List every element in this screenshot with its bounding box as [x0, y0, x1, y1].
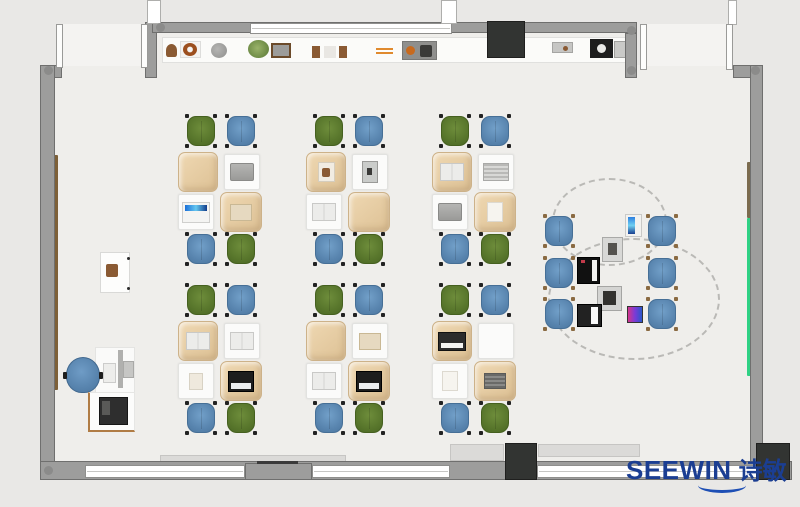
pillar: [487, 21, 525, 58]
pier-trim: [257, 461, 298, 464]
window-pane: [85, 465, 245, 478]
wall-corner-post: [627, 66, 636, 75]
wall-pier: [245, 463, 312, 480]
door-leaf: [640, 24, 647, 70]
brand-swoosh-icon: [698, 478, 746, 493]
brand-logo: SEEWIN诗敏: [626, 451, 787, 486]
wall: [40, 65, 55, 466]
window-pane: [250, 23, 452, 34]
door-leaf: [726, 24, 733, 70]
window-mullion: [441, 0, 457, 24]
window-pane: [312, 465, 450, 478]
wall-corner-post: [156, 23, 165, 32]
window-mullion: [728, 0, 737, 25]
pillar: [505, 443, 537, 480]
floor-plan: SEEWIN诗敏: [0, 0, 800, 507]
door-leaf: [56, 24, 63, 68]
wall-corner-post: [44, 66, 53, 75]
wall-corner-post: [751, 66, 760, 75]
door-leaf: [141, 24, 148, 68]
wall-corner-post: [44, 466, 53, 475]
brand-name-cn: 诗敏: [739, 458, 787, 485]
window-mullion: [147, 0, 161, 24]
wall-corner-post: [627, 26, 636, 35]
wall: [750, 65, 763, 466]
walls-layer: [0, 0, 800, 507]
